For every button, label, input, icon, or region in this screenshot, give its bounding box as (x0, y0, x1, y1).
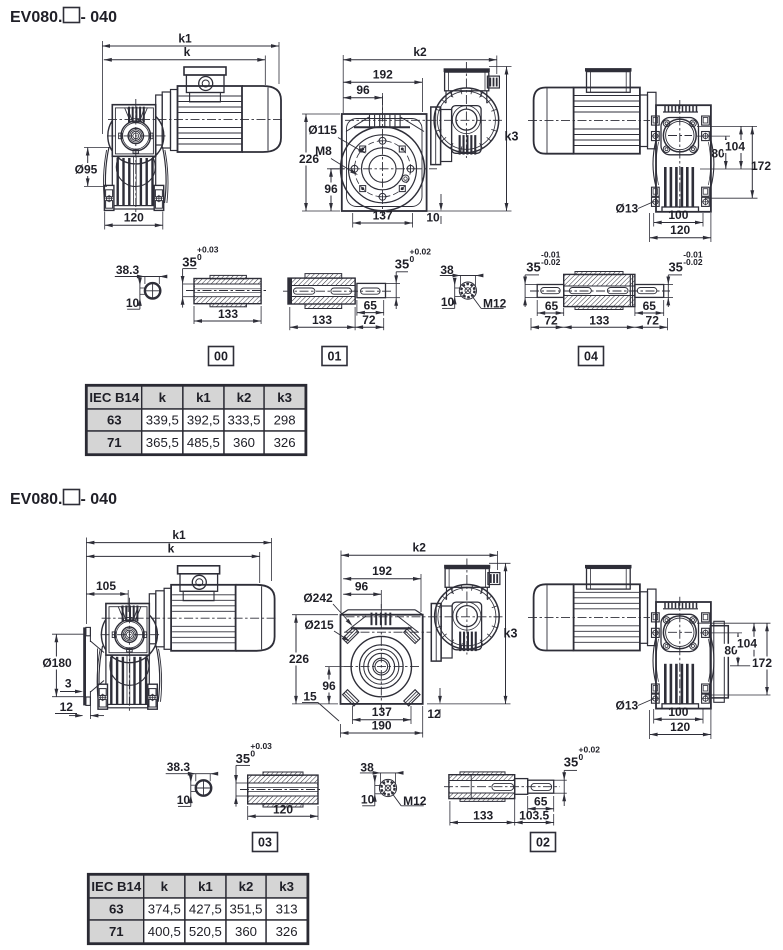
svg-text:35: 35 (182, 255, 196, 270)
svg-text:k3: k3 (505, 130, 519, 144)
svg-text:k1: k1 (178, 32, 192, 46)
svg-text:35: 35 (526, 259, 540, 274)
svg-text:k1: k1 (172, 528, 186, 542)
svg-text:313: 313 (276, 902, 298, 917)
svg-text:80: 80 (711, 147, 725, 161)
svg-text:400,5: 400,5 (148, 924, 181, 939)
svg-text:- 040: - 040 (81, 491, 118, 508)
svg-text:120: 120 (124, 211, 144, 225)
svg-text:192: 192 (372, 564, 392, 578)
svg-text:-0.02: -0.02 (683, 257, 703, 267)
svg-text:k3: k3 (277, 390, 292, 405)
svg-text:38: 38 (360, 760, 374, 774)
svg-text:k2: k2 (413, 45, 427, 59)
svg-text:Ø13: Ø13 (616, 699, 639, 713)
svg-text:374,5: 374,5 (148, 902, 181, 917)
svg-text:0: 0 (250, 749, 255, 759)
svg-text:120: 120 (273, 802, 293, 816)
svg-text:- 040: - 040 (81, 9, 118, 26)
svg-text:03: 03 (258, 836, 272, 850)
svg-text:65: 65 (364, 299, 378, 313)
svg-text:103.5: 103.5 (519, 809, 549, 823)
svg-text:Ø95: Ø95 (75, 163, 98, 177)
svg-text:EV080.: EV080. (10, 491, 62, 508)
svg-text:133: 133 (218, 307, 238, 321)
svg-text:10: 10 (361, 792, 375, 806)
svg-text:10: 10 (177, 793, 191, 807)
svg-text:133: 133 (312, 313, 332, 327)
svg-text:35: 35 (668, 259, 682, 274)
svg-text:04: 04 (584, 350, 598, 364)
svg-text:427,5: 427,5 (189, 902, 222, 917)
svg-text:35: 35 (395, 257, 409, 272)
svg-text:EV080.: EV080. (10, 9, 62, 26)
svg-text:326: 326 (276, 924, 298, 939)
svg-text:63: 63 (109, 902, 124, 917)
svg-text:M8: M8 (315, 144, 332, 158)
svg-text:133: 133 (473, 809, 493, 823)
svg-text:137: 137 (373, 208, 393, 222)
svg-text:192: 192 (373, 68, 393, 82)
svg-text:10: 10 (426, 211, 440, 225)
svg-text:520,5: 520,5 (189, 924, 222, 939)
svg-text:Ø242: Ø242 (303, 591, 333, 605)
svg-text:k2: k2 (239, 879, 254, 894)
svg-text:k: k (184, 45, 191, 59)
svg-text:104: 104 (725, 140, 745, 154)
svg-text:326: 326 (274, 435, 296, 450)
svg-text:226: 226 (289, 652, 309, 666)
svg-text:k3: k3 (504, 627, 518, 641)
svg-text:10: 10 (441, 295, 455, 309)
svg-text:k3: k3 (279, 879, 294, 894)
svg-text:38.3: 38.3 (116, 263, 140, 277)
svg-text:k1: k1 (196, 390, 211, 405)
svg-text:38.3: 38.3 (167, 760, 191, 774)
svg-text:Ø115: Ø115 (308, 123, 337, 137)
svg-text:96: 96 (322, 679, 336, 693)
svg-text:133: 133 (589, 313, 609, 327)
svg-text:65: 65 (643, 299, 657, 313)
svg-text:k: k (159, 390, 167, 405)
svg-text:01: 01 (328, 350, 342, 364)
svg-text:172: 172 (752, 656, 772, 670)
svg-text:3: 3 (65, 677, 72, 691)
svg-text:k2: k2 (413, 541, 427, 555)
svg-text:0: 0 (579, 752, 584, 762)
svg-text:71: 71 (109, 924, 124, 939)
svg-text:351,5: 351,5 (229, 902, 262, 917)
svg-text:72: 72 (646, 313, 660, 327)
svg-text:10: 10 (126, 296, 140, 310)
svg-text:100: 100 (668, 705, 688, 719)
svg-text:38: 38 (440, 263, 454, 277)
svg-text:96: 96 (355, 580, 369, 594)
svg-text:-0.02: -0.02 (541, 257, 561, 267)
svg-text:65: 65 (534, 795, 548, 809)
svg-text:Ø13: Ø13 (616, 202, 639, 216)
svg-text:15: 15 (303, 690, 317, 704)
svg-text:02: 02 (536, 836, 550, 850)
svg-text:120: 120 (670, 720, 690, 734)
svg-text:35: 35 (236, 751, 250, 766)
svg-text:12: 12 (427, 707, 441, 721)
svg-text:65: 65 (545, 299, 559, 313)
svg-text:IEC B14: IEC B14 (89, 390, 140, 405)
svg-text:339,5: 339,5 (146, 413, 179, 428)
svg-text:k: k (168, 542, 175, 556)
svg-text:392,5: 392,5 (187, 413, 220, 428)
svg-text:0: 0 (410, 254, 415, 264)
svg-text:12: 12 (60, 700, 74, 714)
svg-text:Ø180: Ø180 (42, 656, 72, 670)
svg-text:360: 360 (235, 924, 257, 939)
svg-text:72: 72 (544, 313, 558, 327)
svg-text:0: 0 (197, 252, 202, 262)
svg-text:333,5: 333,5 (227, 413, 260, 428)
svg-text:72: 72 (362, 313, 376, 327)
svg-text:360: 360 (233, 435, 255, 450)
svg-text:Ø215: Ø215 (304, 618, 334, 632)
svg-text:298: 298 (274, 413, 296, 428)
svg-text:k2: k2 (237, 390, 252, 405)
svg-text:137: 137 (372, 705, 392, 719)
svg-text:71: 71 (107, 435, 122, 450)
svg-text:105: 105 (96, 579, 116, 593)
svg-text:00: 00 (214, 350, 228, 364)
svg-text:IEC B14: IEC B14 (91, 879, 142, 894)
svg-text:120: 120 (670, 223, 690, 237)
svg-text:96: 96 (356, 83, 370, 97)
svg-text:63: 63 (107, 413, 122, 428)
svg-text:485,5: 485,5 (187, 435, 220, 450)
svg-text:35: 35 (564, 755, 578, 770)
svg-text:k: k (161, 879, 169, 894)
svg-text:365,5: 365,5 (146, 435, 179, 450)
svg-text:k1: k1 (198, 879, 213, 894)
svg-text:172: 172 (751, 159, 771, 173)
svg-text:104: 104 (737, 636, 757, 650)
svg-text:96: 96 (324, 182, 338, 196)
svg-text:190: 190 (372, 719, 392, 733)
svg-text:100: 100 (668, 208, 688, 222)
